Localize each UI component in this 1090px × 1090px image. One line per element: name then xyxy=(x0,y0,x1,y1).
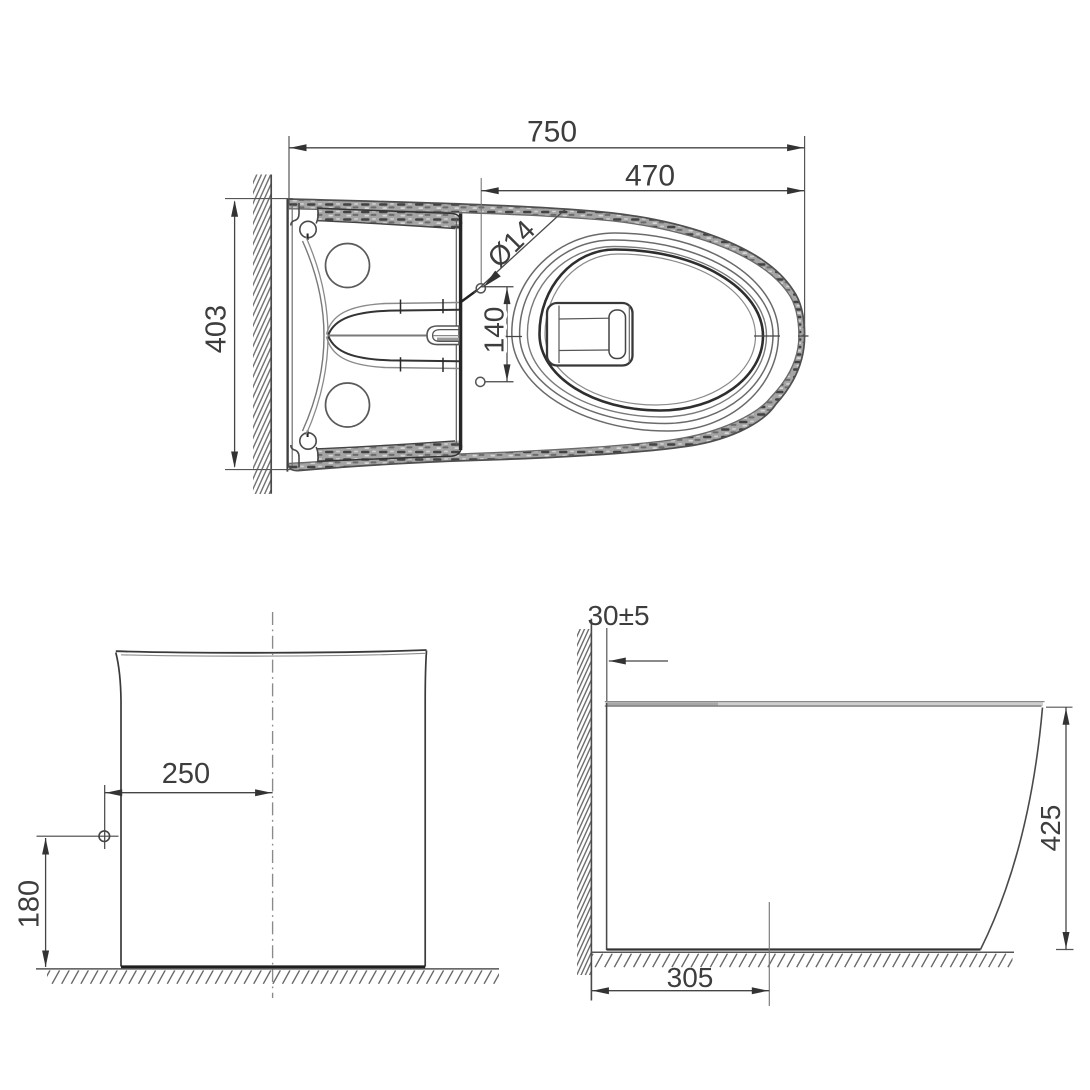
svg-text:250: 250 xyxy=(162,758,210,790)
svg-text:305: 305 xyxy=(667,962,714,993)
svg-text:180: 180 xyxy=(14,880,46,928)
svg-text:425: 425 xyxy=(1035,805,1066,852)
svg-text:750: 750 xyxy=(527,116,577,149)
svg-text:403: 403 xyxy=(201,305,233,353)
svg-text:140: 140 xyxy=(479,307,510,354)
svg-text:30±5: 30±5 xyxy=(587,600,649,631)
svg-text:470: 470 xyxy=(625,160,675,193)
